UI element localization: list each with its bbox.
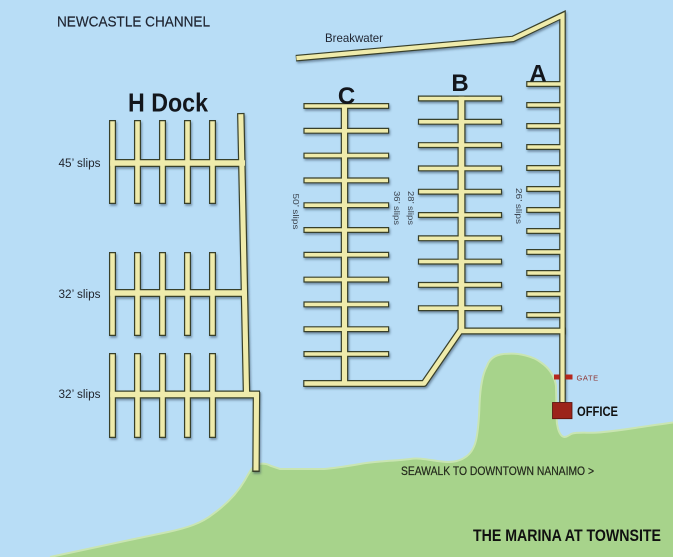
svg-text:GATE: GATE: [577, 374, 599, 383]
svg-text:26’ slips: 26’ slips: [514, 188, 524, 224]
svg-text:A: A: [529, 61, 546, 88]
svg-text:NEWCASTLE CHANNEL: NEWCASTLE CHANNEL: [57, 14, 210, 31]
svg-text:H Dock: H Dock: [128, 88, 208, 118]
svg-text:Breakwater: Breakwater: [325, 31, 383, 45]
svg-text:50’ slips: 50’ slips: [291, 194, 301, 230]
svg-text:OFFICE: OFFICE: [577, 404, 618, 419]
svg-text:32’ slips: 32’ slips: [59, 289, 101, 301]
svg-text:B: B: [451, 70, 468, 97]
svg-text:36’ slips: 36’ slips: [392, 191, 402, 225]
svg-text:SEAWALK TO DOWNTOWN NANAIMO >: SEAWALK TO DOWNTOWN NANAIMO >: [401, 466, 594, 478]
svg-text:45’ slips: 45’ slips: [59, 158, 101, 170]
svg-text:28’ slips: 28’ slips: [406, 191, 416, 225]
svg-text:32’ slips: 32’ slips: [59, 389, 101, 401]
svg-text:THE MARINA AT TOWNSITE: THE MARINA AT TOWNSITE: [473, 527, 661, 545]
svg-text:C: C: [338, 83, 355, 110]
